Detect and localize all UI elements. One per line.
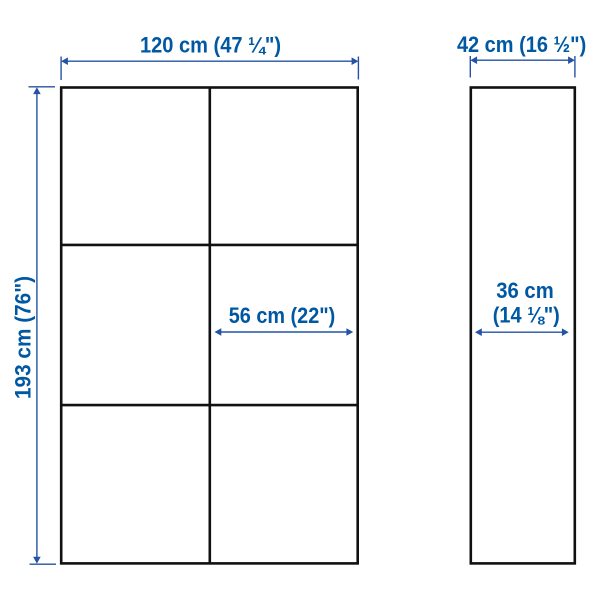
svg-text:56 cm (22"): 56 cm (22") [229,303,336,328]
svg-text:36 cm: 36 cm [496,278,554,303]
svg-text:193 cm (76"): 193 cm (76") [11,276,36,399]
svg-text:42 cm (16 ½"): 42 cm (16 ½") [457,32,586,57]
svg-text:(14 ⅛"): (14 ⅛") [493,302,560,327]
svg-text:120 cm (47 ¼"): 120 cm (47 ¼") [140,33,281,58]
